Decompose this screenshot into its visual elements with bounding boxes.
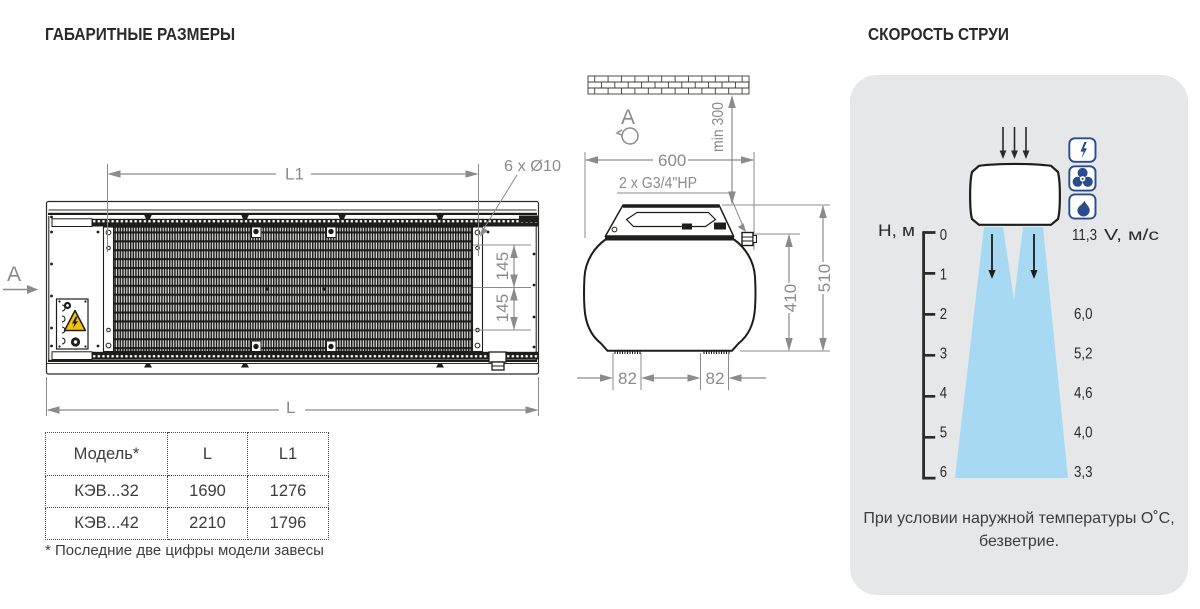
svg-text:410: 410 xyxy=(781,284,800,312)
svg-text:145: 145 xyxy=(493,252,512,280)
svg-text:4,0: 4,0 xyxy=(1074,424,1093,441)
svg-text:6 x Ø10: 6 x Ø10 xyxy=(504,158,561,175)
svg-text:145: 145 xyxy=(493,294,512,322)
svg-text:5: 5 xyxy=(940,424,947,441)
svg-text:min 300: min 300 xyxy=(710,102,727,152)
svg-text:82: 82 xyxy=(706,369,725,388)
svg-text:11,3: 11,3 xyxy=(1072,227,1097,244)
svg-text:5,2: 5,2 xyxy=(1074,345,1093,362)
svg-text:1: 1 xyxy=(940,266,947,283)
svg-text:3: 3 xyxy=(940,345,947,362)
svg-text:3,3: 3,3 xyxy=(1074,464,1093,481)
svg-text:A: A xyxy=(7,263,21,286)
svg-text:A: A xyxy=(621,106,635,129)
svg-text:H, м: H, м xyxy=(878,222,915,240)
svg-text:4,6: 4,6 xyxy=(1074,385,1093,402)
svg-text:L: L xyxy=(286,398,295,417)
svg-text:2: 2 xyxy=(940,306,947,323)
svg-text:2 x G3/4"HP: 2 x G3/4"HP xyxy=(619,175,697,192)
svg-text:600: 600 xyxy=(658,151,686,170)
svg-text:L1: L1 xyxy=(285,165,304,184)
svg-text:6,0: 6,0 xyxy=(1074,306,1093,323)
svg-text:V, м/с: V, м/с xyxy=(1104,227,1159,244)
svg-text:4: 4 xyxy=(940,385,947,402)
svg-text:510: 510 xyxy=(815,264,834,292)
svg-text:82: 82 xyxy=(618,369,637,388)
svg-text:0: 0 xyxy=(940,227,947,244)
svg-text:6: 6 xyxy=(940,464,947,481)
